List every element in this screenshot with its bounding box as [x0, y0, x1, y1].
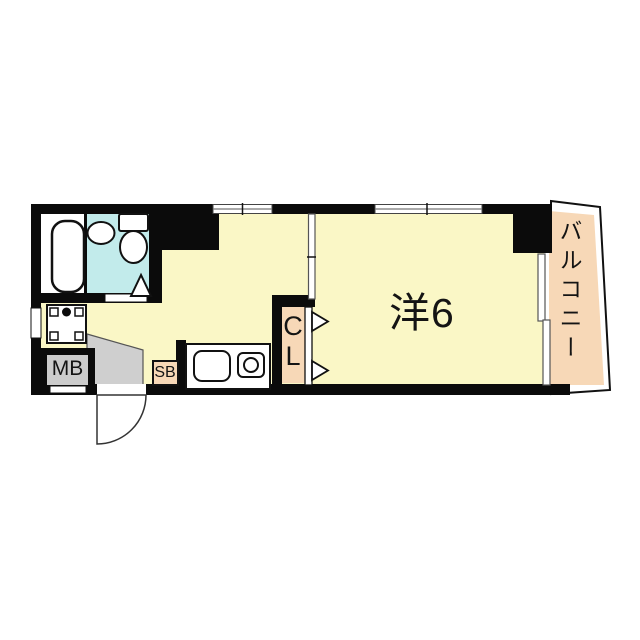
shoe-box-label: SB [152, 364, 178, 382]
balcony-label: バルコニー [556, 219, 582, 364]
toilet-icon [119, 214, 148, 263]
kitchen-sink-icon [194, 351, 230, 381]
wall-room-top-right [513, 204, 552, 253]
entrance-opening [97, 384, 146, 395]
wall-bath-right [149, 204, 162, 303]
floor-plan: 洋6 バルコニー C L SB MB [0, 0, 640, 640]
kitchen-counter [186, 344, 270, 389]
wall-left-vent [31, 308, 41, 338]
wash-basin-icon [88, 222, 115, 244]
meter-box-door [50, 386, 86, 393]
entrance-door-swing-icon [97, 395, 146, 444]
gas-stove-icon [238, 353, 264, 377]
main-room-label: 洋6 [389, 279, 455, 339]
bathtub-icon [52, 221, 84, 292]
washer-pan-icon [47, 305, 86, 343]
room-partition [307, 214, 316, 299]
wall-left [31, 204, 41, 395]
meter-box-label: MB [41, 357, 94, 381]
closet-label: C L [281, 311, 305, 371]
floor-plan-drawing [0, 0, 640, 640]
